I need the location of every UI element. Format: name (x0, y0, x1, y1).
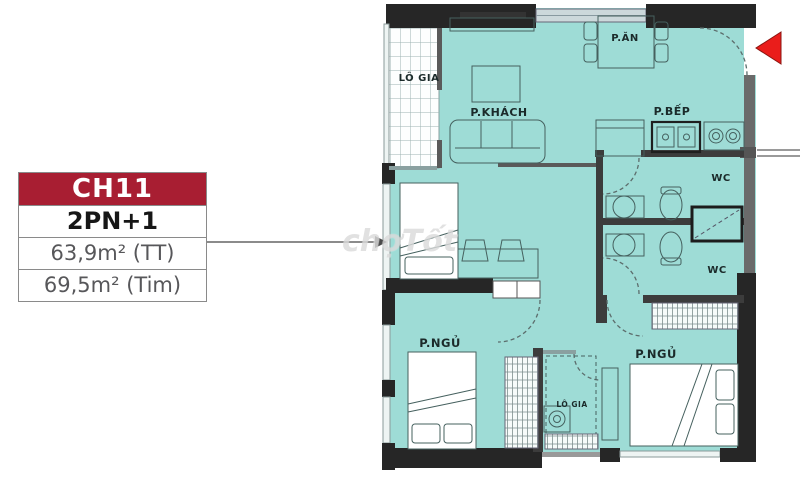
balcony-top (389, 28, 439, 168)
bed-left (408, 352, 476, 449)
hall-cabinet (493, 281, 540, 298)
label-bedroom-right: P.NGỦ (635, 345, 677, 361)
tv (460, 12, 526, 18)
entrance-arrow-icon (756, 32, 781, 64)
corridor-wall-lines (757, 150, 800, 156)
leader-line (205, 241, 377, 243)
unit-info-card: CH11 2PN+1 63,9m² (TT) 69,5m² (Tim) (18, 172, 207, 302)
window-bottom (620, 451, 720, 457)
window-balcony (384, 24, 389, 168)
leader-arrowhead-icon (375, 236, 387, 248)
label-wc-top: WC (711, 173, 730, 184)
unit-area-tim: 69,5m² (Tim) (19, 269, 206, 301)
wardrobe-left (505, 357, 538, 448)
wardrobe-right (652, 303, 738, 329)
bed-middle (400, 183, 458, 279)
label-dining-room: P.ĂN (611, 31, 638, 44)
label-balcony-top: LÔ GIA (399, 71, 440, 84)
window-left-2 (383, 325, 390, 380)
bed-right (630, 364, 738, 446)
label-kitchen: P.BẾP (654, 103, 691, 118)
label-wc-bottom: WC (707, 265, 726, 276)
window-left-3 (383, 397, 390, 443)
unit-layout-type: 2PN+1 (19, 205, 206, 237)
label-bedroom-left: P.NGỦ (419, 334, 461, 350)
label-living-room: P.KHÁCH (470, 106, 527, 119)
shaft (692, 207, 742, 241)
listing-image: LÔ GIA P.KHÁCH P.ĂN P.BẾP WC WC P.NGỦ LÔ… (0, 0, 800, 489)
label-balcony-bottom: LÔ GIA (556, 400, 587, 409)
unit-area-tt: 63,9m² (TT) (19, 237, 206, 269)
unit-code: CH11 (19, 173, 206, 205)
